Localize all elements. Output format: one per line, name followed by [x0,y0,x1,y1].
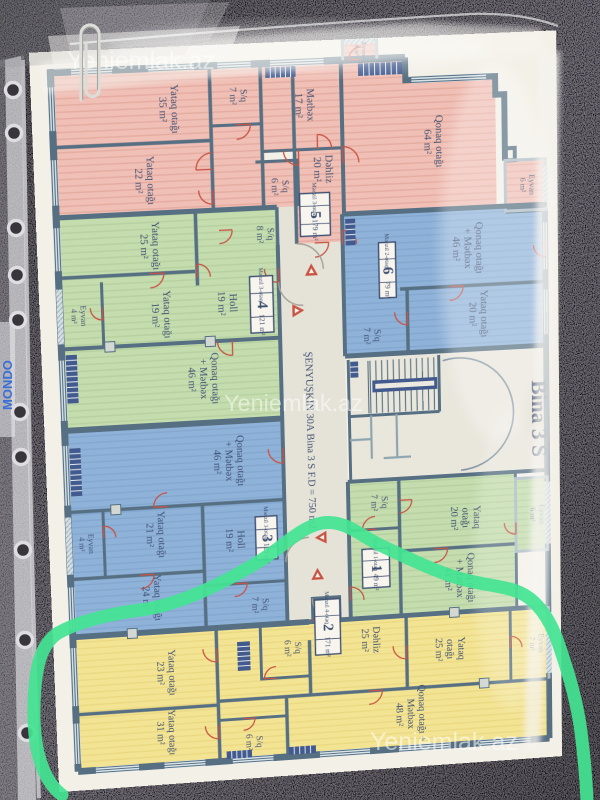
svg-text:Yeniemlak.az: Yeniemlak.az [370,728,518,756]
svg-text:MONDO: MONDO [0,360,15,410]
svg-text:Yeniemlak.az: Yeniemlak.az [67,47,215,75]
svg-text:Yeniemlak.az: Yeniemlak.az [224,390,363,416]
